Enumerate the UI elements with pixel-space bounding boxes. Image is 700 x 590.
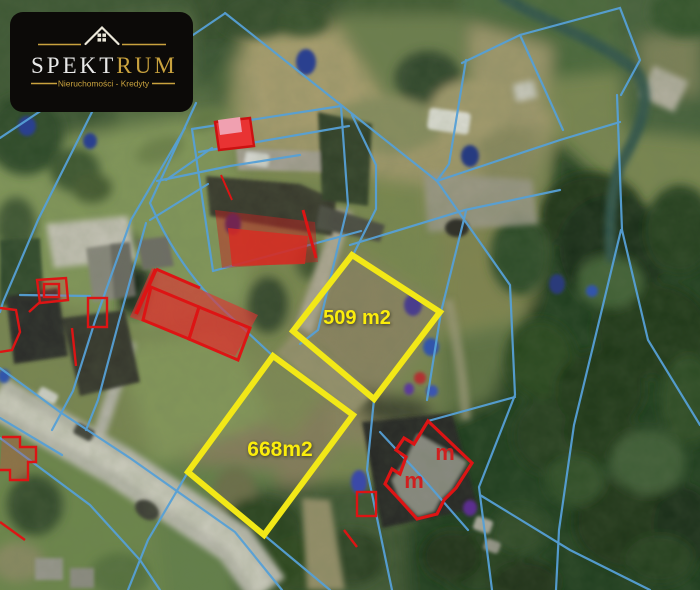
svg-text:668m2: 668m2: [247, 438, 312, 461]
svg-text:SPEKTRUM: SPEKTRUM: [31, 53, 178, 78]
svg-text:Nieruchomości - Kredyty: Nieruchomości - Kredyty: [58, 79, 150, 89]
svg-text:m: m: [435, 440, 455, 465]
svg-text:m: m: [404, 468, 424, 493]
svg-text:509 m2: 509 m2: [323, 307, 391, 329]
